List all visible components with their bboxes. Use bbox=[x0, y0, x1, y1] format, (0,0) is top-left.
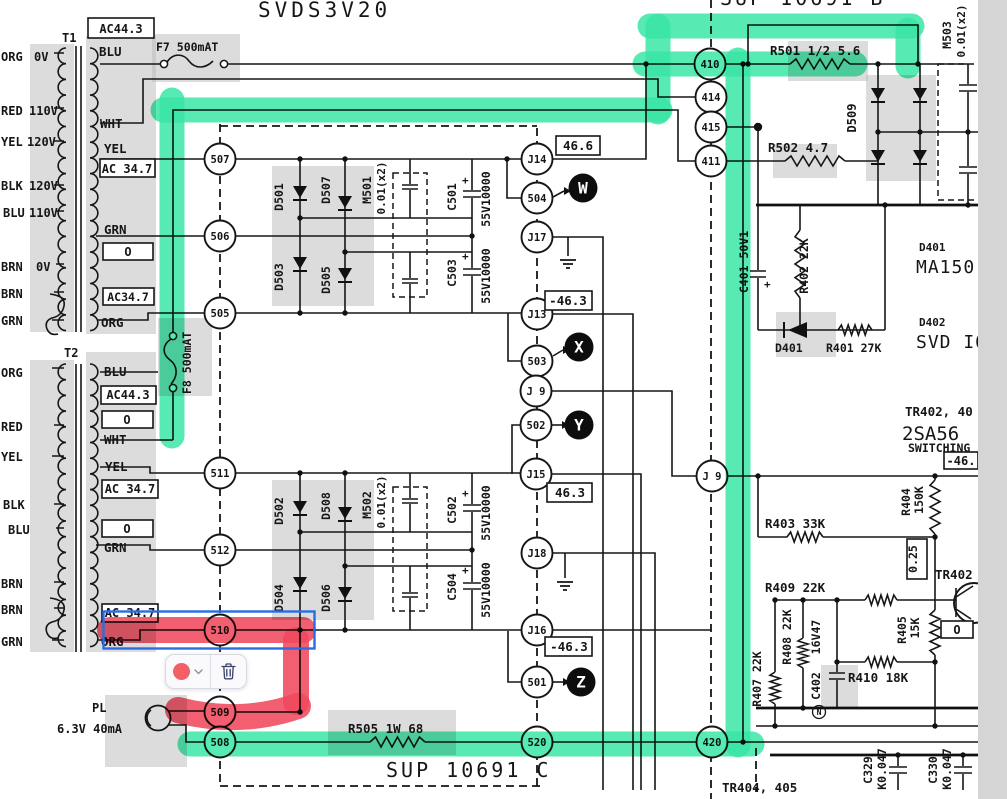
junction-dot bbox=[772, 723, 777, 728]
annotation-workspace: 507506505511512510509508J14504J17J13503J… bbox=[0, 0, 1007, 799]
halftone-patch bbox=[30, 360, 74, 652]
label-grn: GRN bbox=[1, 314, 23, 328]
label-d503: D503 bbox=[272, 263, 286, 291]
label-k047b: K0.047 bbox=[940, 748, 954, 790]
label-t2: T2 bbox=[64, 346, 78, 360]
test-point-letter-z: Z bbox=[576, 673, 586, 692]
label-ac443_t2: AC44.3 bbox=[106, 388, 149, 402]
label-ac347_t1: AC 34.7 bbox=[102, 162, 153, 176]
label-yel2: YEL bbox=[1, 450, 23, 464]
junction-dot bbox=[342, 310, 347, 315]
connector-label-j14: J14 bbox=[528, 154, 547, 166]
label-n: N bbox=[817, 708, 822, 717]
label-grn_t1r: GRN bbox=[104, 222, 127, 237]
label-ma150: MA150 bbox=[916, 257, 975, 278]
junction-dot bbox=[917, 129, 922, 134]
test-point-letter-x: X bbox=[574, 338, 584, 357]
label-v120b: 120V bbox=[29, 179, 58, 193]
label-f7: F7 500mAT bbox=[156, 40, 218, 54]
label-org2: ORG bbox=[1, 366, 23, 380]
label-ac347_t2: AC 34.7 bbox=[105, 482, 156, 496]
label-r410: R410 18K bbox=[848, 670, 909, 685]
label-boxed-vm46: -46. bbox=[947, 454, 976, 468]
label-c503: C503 bbox=[445, 259, 459, 287]
label-boxed-vm463a: -46.3 bbox=[549, 293, 587, 308]
label-v0b: 0V bbox=[36, 260, 50, 274]
label-pl: PL bbox=[92, 701, 106, 715]
label-titles-module_top_right: SUP 10691 B bbox=[720, 0, 885, 10]
label-v110a: 110V bbox=[29, 104, 58, 118]
label-blu: BLU bbox=[3, 206, 25, 220]
junction-dot bbox=[800, 597, 805, 602]
label-d506: D506 bbox=[319, 584, 333, 612]
canvas-right-gutter bbox=[978, 0, 1007, 799]
connector-label-j16: J16 bbox=[528, 625, 547, 637]
label-c502: C502 bbox=[445, 496, 459, 524]
label-titles-module_bottom: SUP 10691 C bbox=[386, 758, 551, 782]
fuse-terminal bbox=[220, 60, 227, 67]
label-r404: R404 bbox=[899, 488, 913, 516]
label-v120a: 120V bbox=[27, 135, 56, 149]
label-blk: BLK bbox=[1, 179, 23, 193]
junction-dot bbox=[932, 723, 937, 728]
label-m503v: 0.01(x2) bbox=[955, 5, 968, 58]
junction-dot bbox=[834, 659, 839, 664]
label-org0v: ORG bbox=[1, 50, 23, 64]
label-org_t1r: ORG bbox=[101, 315, 124, 330]
label-c501: C501 bbox=[445, 183, 459, 211]
label-svd: SVD I0 bbox=[916, 332, 987, 353]
label-ac347b_t1: AC34.7 bbox=[107, 290, 149, 304]
label-c503p: + bbox=[462, 250, 469, 263]
connector-label-j18: J18 bbox=[528, 548, 547, 560]
label-v16v47: 16V47 bbox=[809, 620, 823, 655]
junction-dot bbox=[342, 563, 347, 568]
junction-dot bbox=[965, 129, 970, 134]
label-pl_v: 6.3V 40mA bbox=[57, 722, 123, 736]
label-boxed-v466: 46.6 bbox=[563, 138, 593, 153]
label-boxed-vo3: O bbox=[953, 623, 960, 637]
label-v55a: 55V10000 bbox=[479, 171, 493, 226]
pointer-arrow bbox=[553, 350, 563, 356]
label-c329: C329 bbox=[861, 756, 875, 784]
label-brn3: BRN bbox=[1, 577, 23, 591]
junction-dot bbox=[895, 752, 900, 757]
junction-dot bbox=[297, 529, 302, 534]
ground-icon bbox=[560, 260, 576, 268]
label-c402: C402 bbox=[809, 672, 823, 700]
connector-label-j15: J15 bbox=[527, 469, 546, 481]
connector-label-n512: 512 bbox=[211, 545, 230, 557]
junction-dot bbox=[932, 659, 937, 664]
label-d504: D504 bbox=[272, 584, 286, 612]
junction-dot bbox=[297, 156, 302, 161]
test-point-letter-y: Y bbox=[574, 416, 584, 435]
label-r403: R403 33K bbox=[765, 516, 826, 531]
connector-circles: 507506505511512510509508J14504J17J13503J… bbox=[205, 49, 728, 758]
label-m502v: 0.01(x2) bbox=[375, 476, 388, 529]
label-blu_t1: BLU bbox=[99, 44, 122, 59]
label-ac443_t1: AC44.3 bbox=[99, 22, 142, 36]
color-swatch-button[interactable] bbox=[166, 655, 210, 688]
connector-label-j9l: J 9 bbox=[527, 386, 546, 398]
junction-dot bbox=[297, 215, 302, 220]
connector-label-n414: 414 bbox=[702, 92, 721, 104]
junction-dot bbox=[875, 129, 880, 134]
junction-dot bbox=[342, 470, 347, 475]
label-brn2: BRN bbox=[1, 287, 23, 301]
label-yel_t1r: YEL bbox=[104, 141, 127, 156]
label-r402: R402 22K bbox=[797, 238, 811, 293]
label-d401s: D401 bbox=[775, 341, 803, 355]
label-r409: R409 22K bbox=[765, 580, 826, 595]
junction-dot bbox=[504, 156, 509, 161]
connector-label-n415: 415 bbox=[702, 122, 721, 134]
label-c330: C330 bbox=[926, 756, 940, 784]
junction-dot bbox=[834, 597, 839, 602]
label-m501v: 0.01(x2) bbox=[375, 162, 388, 215]
junction-dot bbox=[754, 123, 762, 131]
annotation-toolbar bbox=[165, 654, 247, 689]
label-d402t: D402 bbox=[919, 316, 946, 329]
schematic-canvas: 507506505511512510509508J14504J17J13503J… bbox=[0, 0, 1007, 799]
label-grn2: GRN bbox=[1, 635, 23, 649]
label-o2_t2: O bbox=[123, 522, 130, 536]
label-v110b: 110V bbox=[29, 206, 58, 220]
connector-label-n504: 504 bbox=[528, 193, 547, 205]
junction-dot bbox=[965, 202, 970, 207]
label-r502: R502 4.7 bbox=[768, 140, 828, 155]
label-blu_t2: BLU bbox=[104, 364, 127, 379]
label-red2: RED bbox=[1, 420, 23, 434]
label-o_t1: O bbox=[124, 245, 131, 259]
label-d505: D505 bbox=[319, 266, 333, 294]
connector-label-n501: 501 bbox=[528, 677, 547, 689]
label-c501p: + bbox=[462, 174, 469, 187]
junction-dot bbox=[342, 156, 347, 161]
label-r408: R408 22K bbox=[780, 609, 794, 664]
chevron-down-icon bbox=[194, 669, 203, 675]
junction-dot bbox=[882, 202, 887, 207]
label-blu2: BLU bbox=[8, 523, 30, 537]
label-r407: R407 22K bbox=[750, 651, 764, 706]
label-c504p: + bbox=[462, 564, 469, 577]
label-brn4: BRN bbox=[1, 603, 23, 617]
junction-dot bbox=[342, 627, 347, 632]
label-m501: M501 bbox=[360, 176, 374, 204]
label-yel: YEL bbox=[1, 135, 23, 149]
pointer-arrow bbox=[553, 191, 564, 197]
junction-dot bbox=[755, 473, 760, 478]
label-c502p: + bbox=[462, 487, 469, 500]
swatch-color-dot bbox=[173, 663, 190, 680]
label-r405v: 15K bbox=[908, 618, 922, 639]
label-v55c: 55V10000 bbox=[479, 485, 493, 540]
junction-dot bbox=[960, 752, 965, 757]
label-r404v: 150K bbox=[912, 486, 926, 514]
label-boxed-v463: 46.3 bbox=[555, 485, 585, 500]
trash-icon bbox=[221, 663, 236, 680]
label-d508: D508 bbox=[319, 492, 333, 520]
red-highlight-stroke[interactable] bbox=[178, 706, 298, 717]
label-red: RED bbox=[1, 104, 23, 118]
junction-dot bbox=[875, 61, 880, 66]
connector-label-n506: 506 bbox=[211, 231, 230, 243]
label-wht_t1: WHT bbox=[100, 116, 123, 131]
label-d507: D507 bbox=[319, 176, 333, 204]
label-c401p: + bbox=[764, 278, 771, 291]
ground-icon bbox=[557, 582, 573, 590]
label-v55b: 55V10000 bbox=[479, 248, 493, 303]
connector-label-n507: 507 bbox=[211, 154, 230, 166]
connector-label-j13: J13 bbox=[528, 309, 547, 321]
label-tr404: TR404, 405 bbox=[722, 780, 797, 795]
junction-dot bbox=[297, 310, 302, 315]
label-titles-main: SVDS3V20 bbox=[258, 0, 391, 22]
label-v0a: 0V bbox=[34, 50, 48, 64]
label-v55d: 55V10000 bbox=[479, 562, 493, 617]
label-boxed-vm463b: -46.3 bbox=[550, 639, 588, 654]
junction-dot bbox=[297, 470, 302, 475]
label-o1_t2: O bbox=[123, 413, 130, 427]
junction-dot bbox=[800, 705, 805, 710]
connector-label-n511: 511 bbox=[211, 468, 230, 480]
connector-label-j17: J17 bbox=[528, 232, 547, 244]
connector-label-n411: 411 bbox=[702, 156, 721, 168]
junction-dot bbox=[772, 597, 777, 602]
label-brn1: BRN bbox=[1, 260, 23, 274]
junction-dot bbox=[932, 473, 937, 478]
connector-label-n505: 505 bbox=[211, 308, 230, 320]
delete-button[interactable] bbox=[210, 655, 246, 688]
connector-label-n502: 502 bbox=[527, 420, 546, 432]
connector-label-n503: 503 bbox=[528, 356, 547, 368]
junction-dot bbox=[342, 249, 347, 254]
test-point-letter-w: W bbox=[578, 179, 588, 198]
connector-label-j9r: J 9 bbox=[703, 471, 722, 483]
label-m503: M503 bbox=[940, 21, 954, 49]
label-boxed-v025: 0.25 bbox=[906, 545, 920, 573]
label-m502: M502 bbox=[360, 491, 374, 519]
junction-dot bbox=[469, 233, 474, 238]
label-blk2: BLK bbox=[3, 498, 25, 512]
label-tr402: TR402 bbox=[935, 567, 973, 582]
junction-dot bbox=[932, 534, 937, 539]
label-d509: D509 bbox=[845, 104, 859, 133]
label-grn_t2: GRN bbox=[104, 540, 127, 555]
label-k047a: K0.047 bbox=[875, 748, 889, 790]
label-d501: D501 bbox=[272, 183, 286, 211]
label-tr402_40: TR402, 40 bbox=[905, 404, 973, 419]
fuse-terminal bbox=[160, 60, 167, 67]
label-yel_t2: YEL bbox=[105, 459, 128, 474]
label-r401: R401 27K bbox=[826, 341, 881, 355]
junction-dot bbox=[469, 547, 474, 552]
label-r405: R405 bbox=[895, 616, 909, 644]
label-d502: D502 bbox=[272, 497, 286, 525]
label-t1: T1 bbox=[62, 31, 76, 45]
label-d401t: D401 bbox=[919, 241, 946, 254]
label-c504: C504 bbox=[445, 573, 459, 601]
label-wht_t2: WHT bbox=[104, 432, 127, 447]
